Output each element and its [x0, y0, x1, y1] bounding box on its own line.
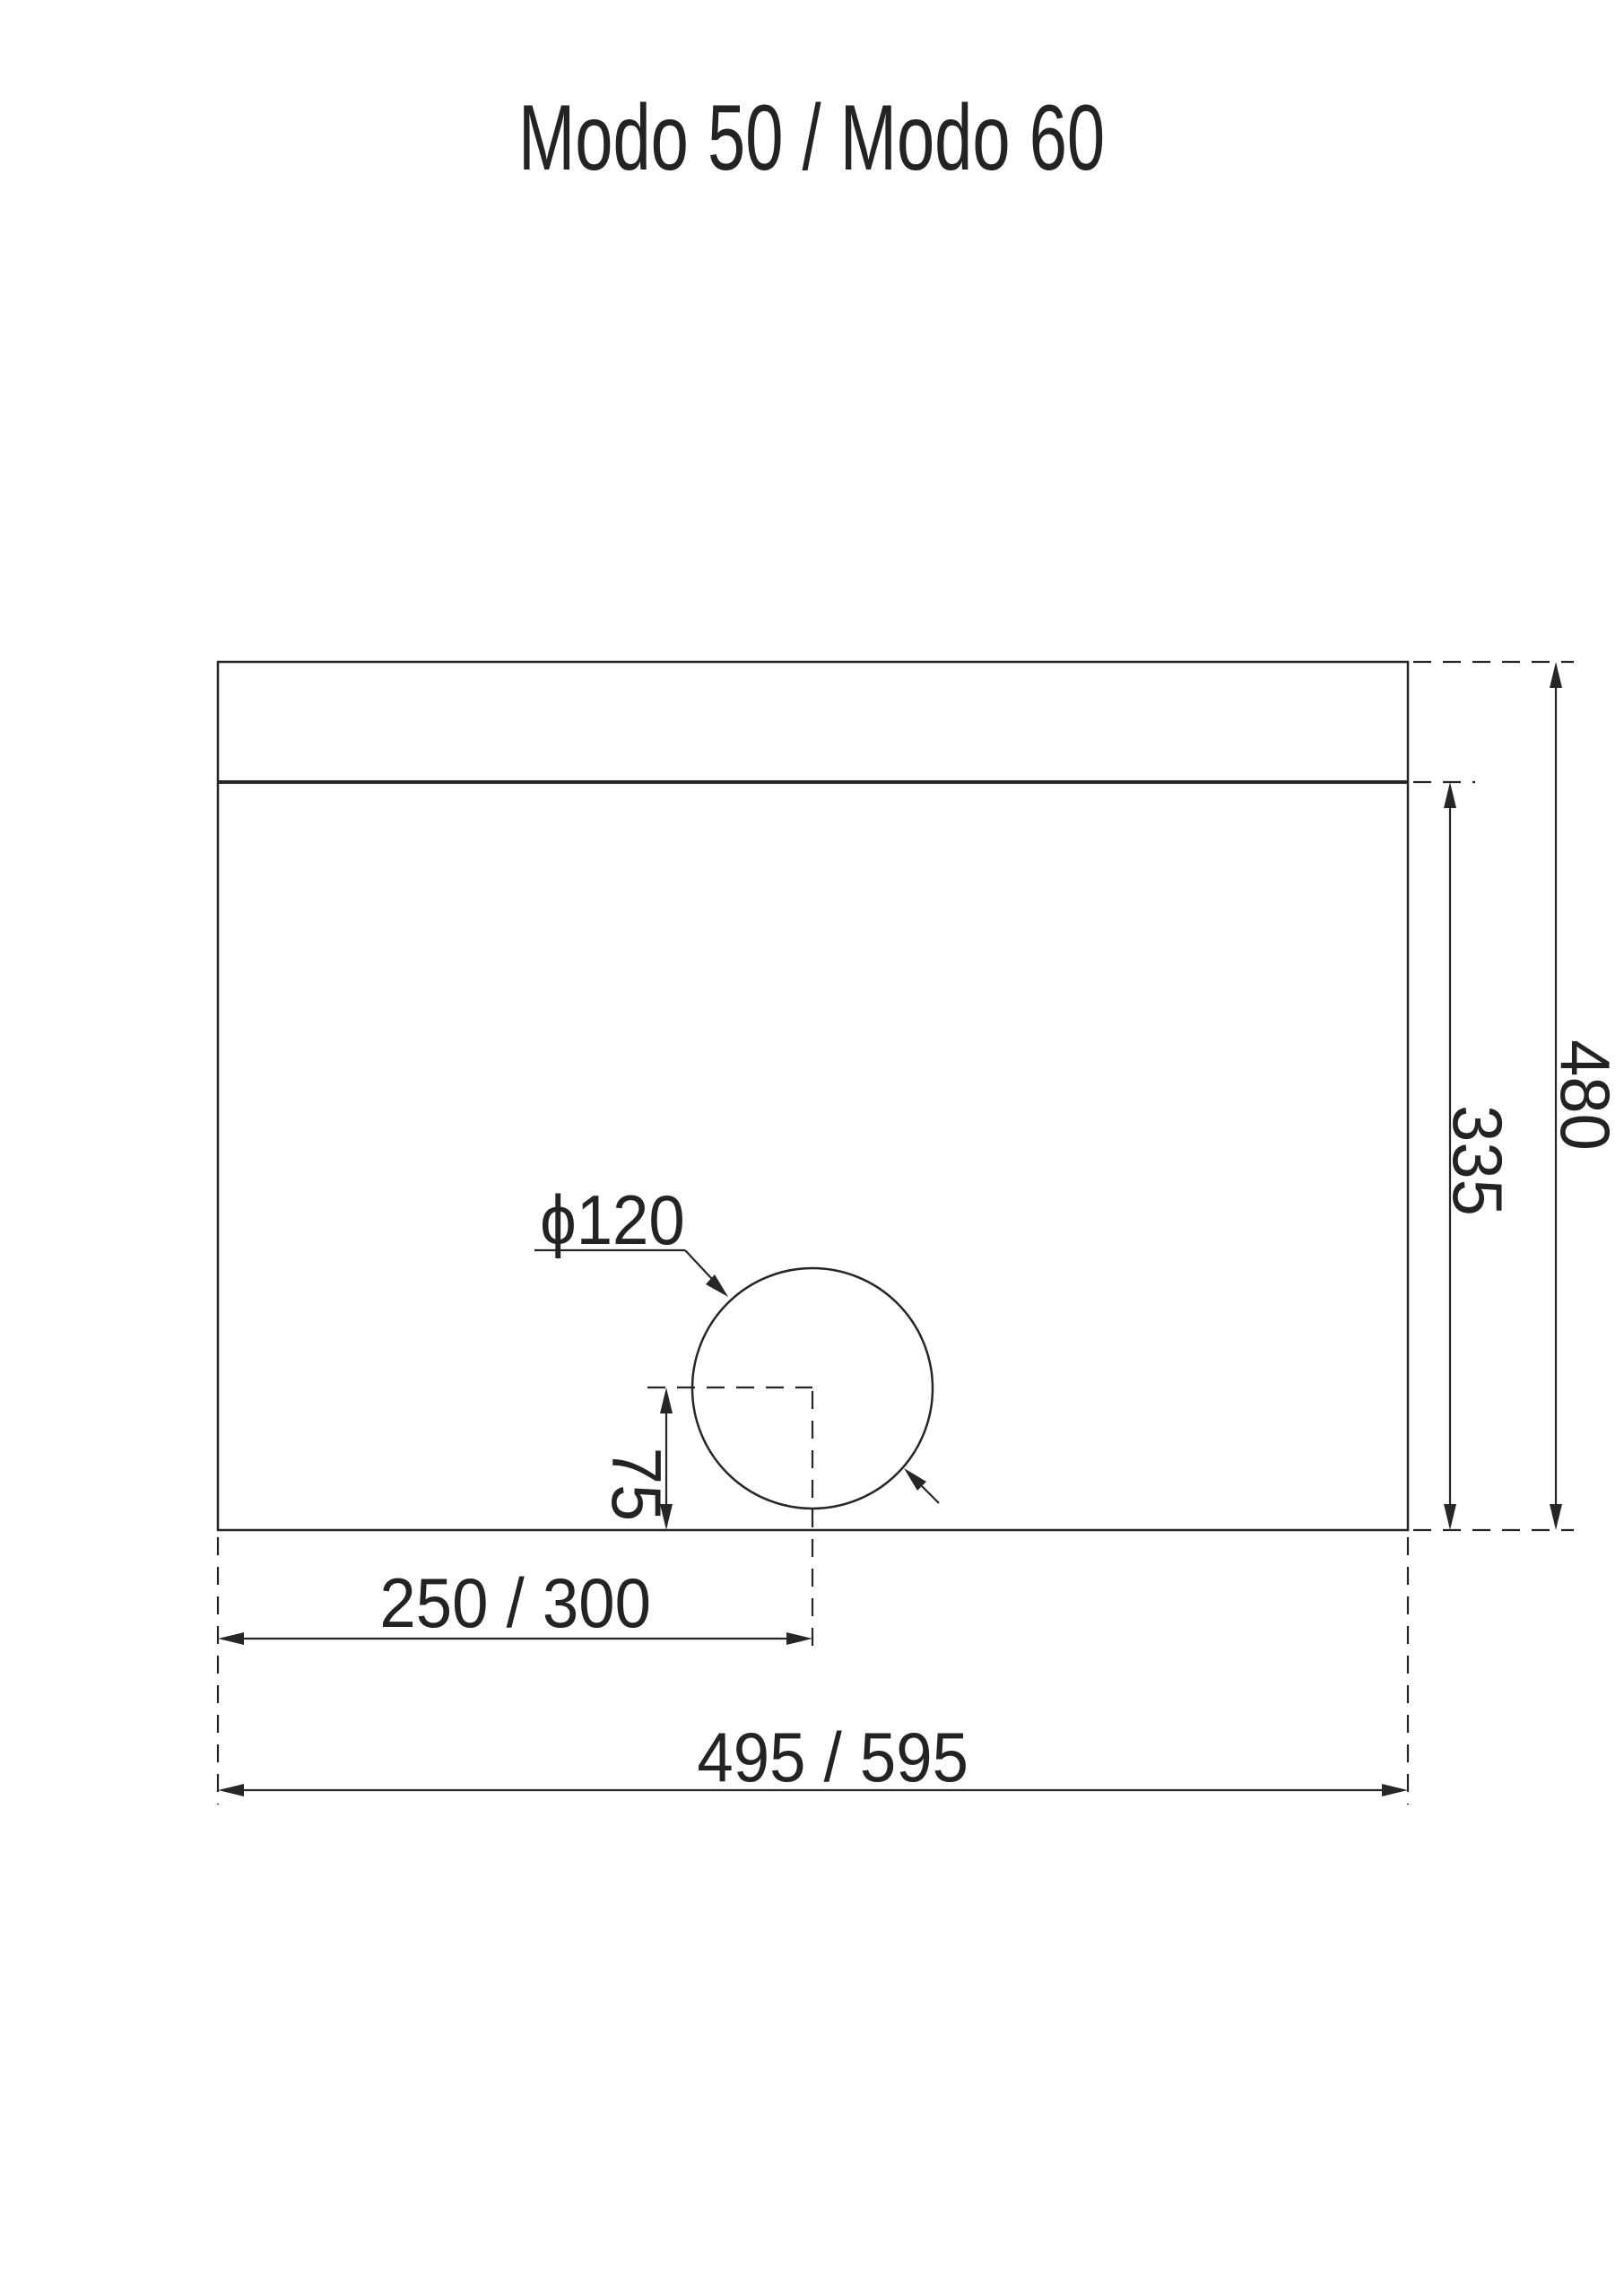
drawing-linework [0, 0, 1624, 2296]
arrowhead-diameter-leader [706, 1274, 728, 1297]
dimension-label-250-300: 250 / 300 [336, 1568, 695, 1638]
cutout-diameter-label: ϕ120 [523, 1185, 702, 1255]
dimension-label-75: 75 [602, 1416, 672, 1552]
dimension-label-480: 480 [1550, 1027, 1620, 1163]
arrowhead-75-top [660, 1387, 673, 1413]
arrowhead-480-top [1550, 662, 1562, 688]
arrowhead-335-bottom [1444, 1504, 1456, 1530]
arrowhead-495-right [1382, 1784, 1408, 1796]
circle-pointer-tail [922, 1486, 939, 1503]
arrowhead-250-left [218, 1632, 244, 1645]
drawing-page: Modo 50 / Modo 60 ϕ120 480 335 75 250 / … [0, 0, 1624, 2296]
arrowhead-250-right [786, 1632, 812, 1645]
dimension-label-335: 335 [1443, 1092, 1513, 1229]
arrowhead-480-bottom [1550, 1504, 1562, 1530]
arrowhead-335-top [1444, 782, 1456, 808]
dimension-label-495-595: 495 / 595 [654, 1722, 1012, 1792]
arrowhead-495-left [218, 1784, 244, 1796]
page-title: Modo 50 / Modo 60 [0, 91, 1624, 185]
